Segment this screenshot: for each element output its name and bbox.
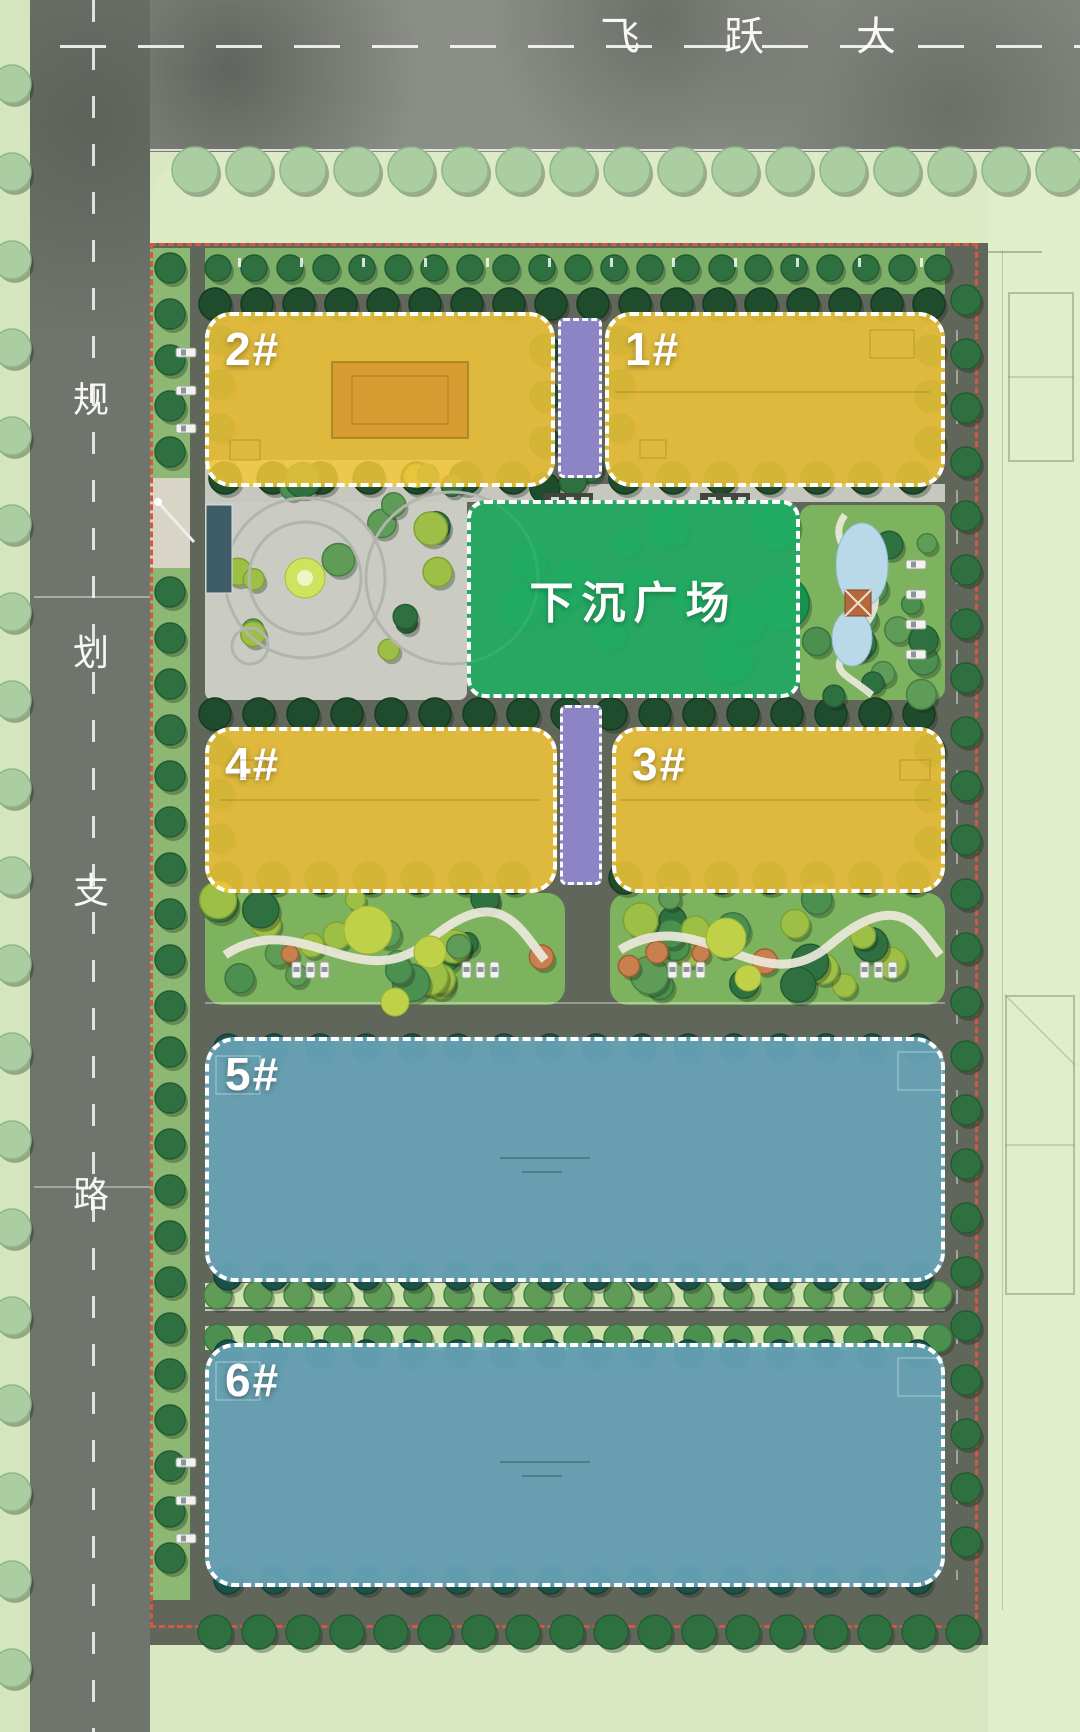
site-master-plan: 2# 1# 下沉广场 4# 3# 5# 6# 飞 跃 大 规 划 支 路: [0, 0, 1080, 1732]
left-road-name-char: 规: [67, 371, 115, 423]
top-road-name-char: 大: [852, 4, 900, 62]
top-road-name-char: 跃: [720, 4, 768, 62]
linework-detail-layer: [0, 0, 1080, 1732]
top-road-name-char: 飞: [596, 4, 644, 62]
left-road-name-char: 支: [67, 862, 115, 914]
left-road-name-char: 路: [67, 1166, 115, 1218]
left-road-name-char: 划: [67, 624, 115, 676]
